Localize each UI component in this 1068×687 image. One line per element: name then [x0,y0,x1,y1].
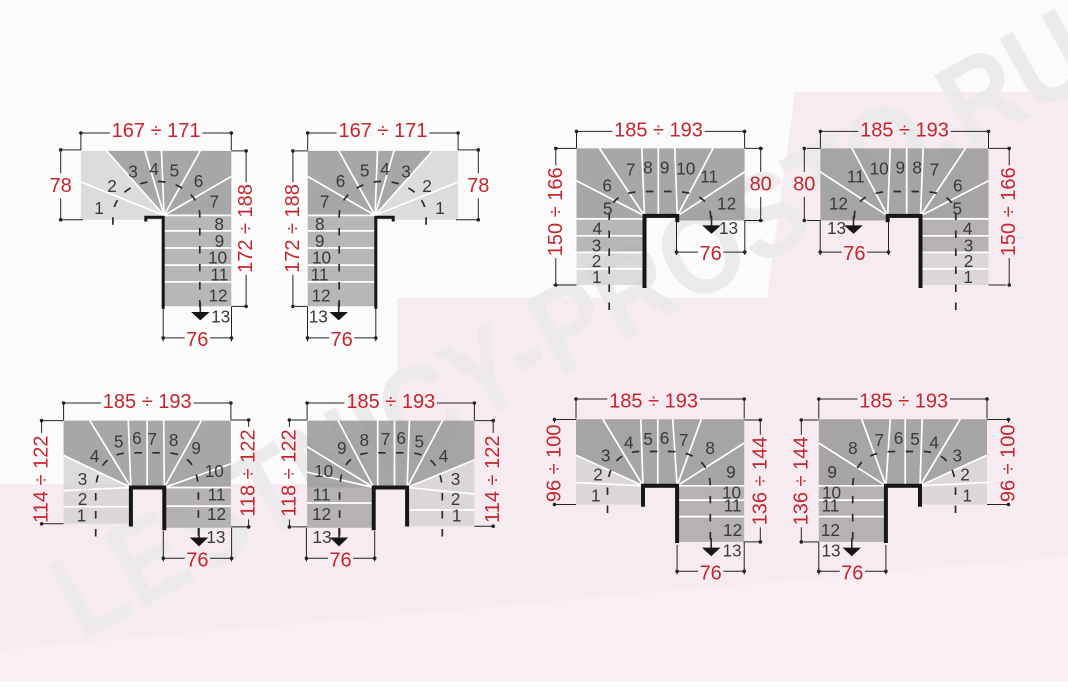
svg-text:13: 13 [827,218,846,238]
svg-text:114 ÷ 122: 114 ÷ 122 [482,436,504,523]
svg-text:4: 4 [624,432,634,452]
svg-text:7: 7 [930,160,940,180]
svg-text:10: 10 [870,159,889,179]
svg-text:11: 11 [724,495,742,515]
svg-text:9: 9 [191,438,201,458]
svg-text:6: 6 [894,428,904,448]
svg-text:5: 5 [415,431,425,451]
svg-text:80: 80 [793,173,815,195]
svg-text:2: 2 [593,464,603,484]
svg-text:10: 10 [314,461,333,481]
svg-text:2: 2 [107,176,117,196]
svg-text:3: 3 [78,469,88,489]
svg-text:12: 12 [312,504,331,524]
svg-text:2: 2 [422,176,432,196]
svg-text:9: 9 [337,438,347,458]
svg-text:6: 6 [953,175,963,195]
svg-text:80: 80 [750,173,772,195]
svg-text:2: 2 [960,464,970,484]
svg-text:8: 8 [643,158,653,178]
svg-text:6: 6 [132,428,142,448]
svg-text:11: 11 [821,495,839,515]
svg-text:5: 5 [360,160,370,180]
svg-text:3: 3 [401,162,411,182]
svg-text:1: 1 [94,198,104,218]
svg-text:12: 12 [717,194,736,214]
svg-text:1: 1 [435,198,445,218]
svg-text:76: 76 [843,243,865,265]
svg-text:10: 10 [205,461,224,481]
svg-text:6: 6 [396,428,406,448]
svg-text:185 ÷ 193: 185 ÷ 193 [346,391,435,413]
svg-text:9: 9 [726,462,736,482]
svg-text:4: 4 [929,432,939,452]
svg-text:12: 12 [208,285,227,305]
svg-text:12: 12 [829,194,848,214]
svg-text:76: 76 [329,549,351,571]
svg-text:9: 9 [827,462,837,482]
svg-text:5: 5 [114,431,124,451]
svg-text:13: 13 [206,527,225,547]
svg-text:12: 12 [311,285,330,305]
svg-text:7: 7 [320,192,330,212]
svg-text:4: 4 [90,446,100,466]
svg-text:8: 8 [169,430,179,450]
svg-text:1: 1 [962,486,972,506]
svg-text:9: 9 [660,158,670,178]
svg-text:76: 76 [841,562,863,584]
svg-text:5: 5 [910,429,920,449]
svg-text:114 ÷ 122: 114 ÷ 122 [31,436,53,523]
svg-text:8: 8 [360,430,370,450]
svg-text:6: 6 [602,175,612,195]
svg-text:76: 76 [186,549,208,571]
svg-text:2: 2 [78,489,88,509]
svg-text:7: 7 [875,430,885,450]
svg-text:4: 4 [439,446,449,466]
svg-text:76: 76 [330,329,352,351]
svg-text:185 ÷ 193: 185 ÷ 193 [859,390,948,412]
svg-text:6: 6 [336,171,346,191]
svg-text:78: 78 [467,175,489,197]
svg-text:13: 13 [309,306,328,326]
svg-text:5: 5 [603,199,613,219]
svg-text:8: 8 [705,438,715,458]
svg-text:6: 6 [660,428,670,448]
svg-text:3: 3 [953,446,963,466]
svg-text:96 ÷ 100: 96 ÷ 100 [544,424,566,502]
svg-text:5: 5 [643,429,653,449]
svg-text:7: 7 [626,160,636,180]
svg-text:1: 1 [591,486,601,506]
svg-text:11: 11 [313,485,331,505]
svg-text:185 ÷ 193: 185 ÷ 193 [103,391,192,413]
svg-text:76: 76 [700,562,722,584]
svg-text:7: 7 [381,429,391,449]
svg-text:150 ÷ 166: 150 ÷ 166 [545,167,567,256]
svg-text:11: 11 [210,264,228,284]
svg-text:78: 78 [50,175,72,197]
svg-text:7: 7 [148,429,158,449]
svg-text:4: 4 [963,219,973,239]
svg-text:12: 12 [821,520,840,540]
svg-text:2: 2 [451,489,461,509]
svg-text:185 ÷ 193: 185 ÷ 193 [614,119,703,141]
svg-text:4: 4 [149,159,159,179]
svg-text:3: 3 [451,469,461,489]
svg-text:11: 11 [311,264,329,284]
svg-text:5: 5 [170,160,180,180]
svg-text:8: 8 [848,438,858,458]
svg-text:4: 4 [593,219,603,239]
svg-text:150 ÷ 166: 150 ÷ 166 [998,167,1020,256]
svg-text:13: 13 [821,541,840,561]
svg-text:11: 11 [847,167,865,187]
svg-text:13: 13 [313,527,332,547]
svg-text:167 ÷ 171: 167 ÷ 171 [338,120,427,142]
svg-text:6: 6 [194,171,204,191]
svg-text:172 ÷ 188: 172 ÷ 188 [235,184,257,273]
svg-text:76: 76 [186,329,208,351]
svg-text:3: 3 [601,446,611,466]
svg-text:10: 10 [676,159,695,179]
svg-text:8: 8 [912,158,922,178]
svg-text:7: 7 [210,192,220,212]
svg-text:136 ÷ 144: 136 ÷ 144 [749,437,771,526]
svg-text:7: 7 [679,430,689,450]
svg-text:4: 4 [380,159,390,179]
svg-text:3: 3 [128,162,138,182]
svg-text:172 ÷ 188: 172 ÷ 188 [282,184,304,273]
svg-text:11: 11 [700,167,718,187]
svg-text:12: 12 [207,504,226,524]
svg-text:13: 13 [722,541,741,561]
svg-text:118 ÷ 122: 118 ÷ 122 [278,429,300,516]
svg-text:118 ÷ 122: 118 ÷ 122 [238,429,260,516]
svg-text:76: 76 [699,243,721,265]
svg-text:9: 9 [896,158,906,178]
svg-text:13: 13 [211,306,230,326]
svg-text:12: 12 [723,520,742,540]
svg-text:5: 5 [953,199,963,219]
svg-text:185 ÷ 193: 185 ÷ 193 [860,119,949,141]
svg-text:185 ÷ 193: 185 ÷ 193 [609,390,698,412]
svg-text:96 ÷ 100: 96 ÷ 100 [998,424,1020,502]
svg-text:11: 11 [208,485,226,505]
svg-text:167 ÷ 171: 167 ÷ 171 [112,120,201,142]
svg-text:136 ÷ 144: 136 ÷ 144 [790,437,812,526]
svg-text:13: 13 [719,218,738,238]
